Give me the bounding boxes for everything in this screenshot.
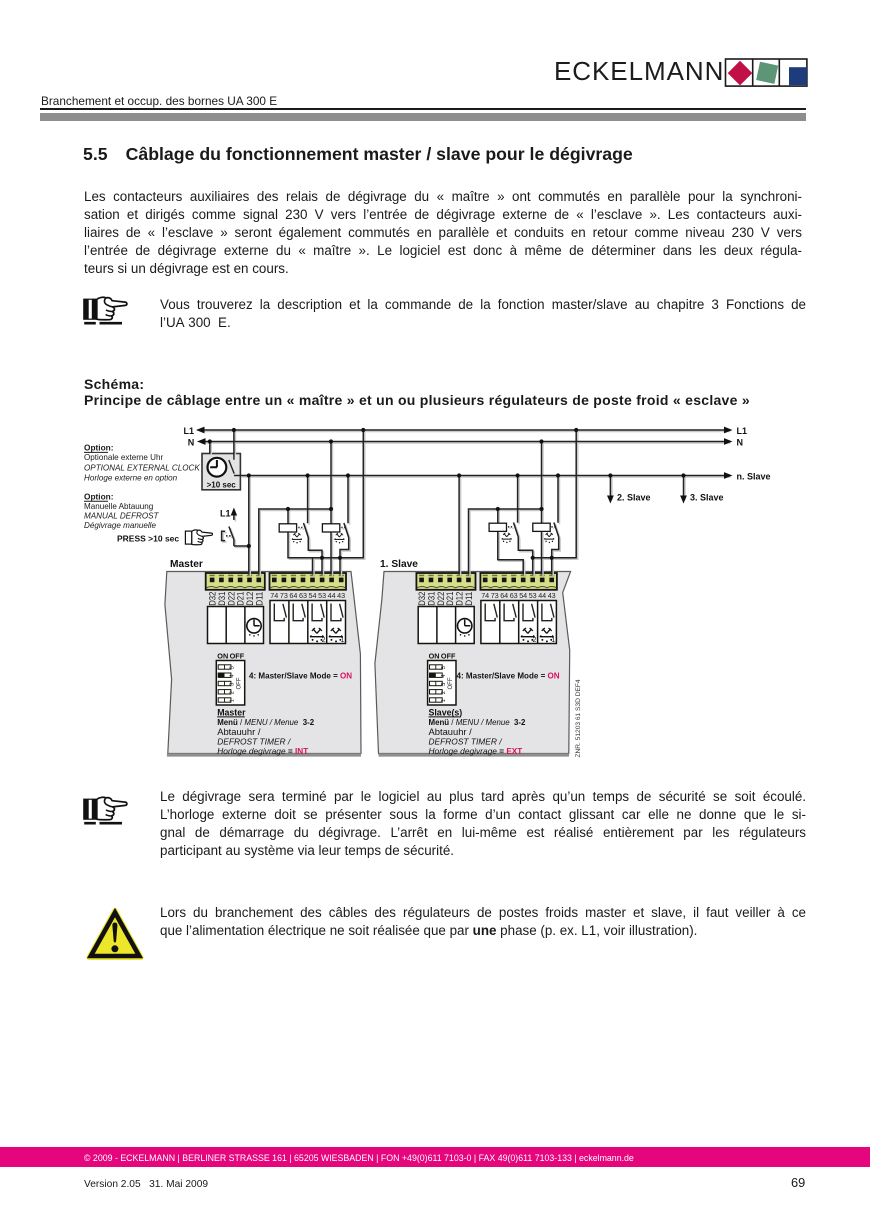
svg-text:ON: ON xyxy=(217,652,228,661)
svg-text:ON: ON xyxy=(429,652,440,661)
svg-text:1: 1 xyxy=(441,699,447,702)
svg-text:64: 64 xyxy=(500,591,508,600)
svg-text:2: 2 xyxy=(533,637,537,644)
svg-text:Option:: Option: xyxy=(84,491,114,501)
svg-text:OFF: OFF xyxy=(237,677,243,689)
svg-text:43: 43 xyxy=(548,591,556,600)
svg-text:2. Slave: 2. Slave xyxy=(617,492,651,502)
svg-text:Manuelle Abtauung: Manuelle Abtauung xyxy=(84,502,153,511)
svg-text:Abtauuhr /: Abtauuhr / xyxy=(217,726,261,737)
svg-text:3: 3 xyxy=(230,683,236,686)
svg-text:N: N xyxy=(188,437,195,447)
svg-text:53: 53 xyxy=(529,591,537,600)
svg-text:MANUAL DEFROST: MANUAL DEFROST xyxy=(84,511,160,520)
svg-text:D11: D11 xyxy=(464,592,474,606)
svg-text:L1: L1 xyxy=(220,509,231,519)
svg-text:54: 54 xyxy=(519,591,527,600)
svg-text:Optionale externe Uhr: Optionale externe Uhr xyxy=(84,453,163,462)
svg-text:OPTIONAL EXTERNAL CLOCK: OPTIONAL EXTERNAL CLOCK xyxy=(84,463,200,472)
svg-text:43: 43 xyxy=(337,591,345,600)
svg-text:Dégivrage manuelle: Dégivrage manuelle xyxy=(84,521,156,530)
svg-text:ZNR. 51203 61 S3D DEF4: ZNR. 51203 61 S3D DEF4 xyxy=(575,679,582,757)
svg-text:1. Slave: 1. Slave xyxy=(380,559,418,570)
svg-text:2: 2 xyxy=(230,691,236,694)
svg-text:n. Slave: n. Slave xyxy=(737,471,771,481)
svg-text:1: 1 xyxy=(341,637,345,644)
svg-text:44: 44 xyxy=(328,591,336,600)
svg-text:74: 74 xyxy=(481,591,489,600)
svg-text:Horloge externe en option: Horloge externe en option xyxy=(84,474,178,483)
svg-text:3: 3 xyxy=(441,683,447,686)
svg-text:53: 53 xyxy=(318,591,326,600)
svg-text:73: 73 xyxy=(491,591,499,600)
svg-text:OFF: OFF xyxy=(230,652,245,661)
svg-text:OFF: OFF xyxy=(441,652,456,661)
svg-text:>10 sec: >10 sec xyxy=(207,480,237,489)
svg-text:63: 63 xyxy=(299,591,307,600)
svg-text:L1: L1 xyxy=(184,426,195,436)
svg-text:N: N xyxy=(737,437,744,447)
svg-text:Horloge degivrage = EXT: Horloge degivrage = EXT xyxy=(429,746,523,756)
svg-text:Slave(s): Slave(s) xyxy=(429,708,463,718)
svg-text:Abtauuhr /: Abtauuhr / xyxy=(429,726,473,737)
svg-text:1: 1 xyxy=(230,699,236,702)
svg-text:5: 5 xyxy=(441,666,447,669)
svg-text:2: 2 xyxy=(322,637,326,644)
svg-text:DEFROST TIMER /: DEFROST TIMER / xyxy=(217,736,292,746)
svg-text:Master: Master xyxy=(170,559,203,570)
svg-text:Horloge degivrage = INT: Horloge degivrage = INT xyxy=(217,746,308,756)
svg-text:OFF: OFF xyxy=(448,677,454,689)
svg-text:1: 1 xyxy=(551,637,555,644)
svg-text:DEFROST TIMER /: DEFROST TIMER / xyxy=(429,736,504,746)
svg-text:4: Master/Slave Mode = ON: 4: Master/Slave Mode = ON xyxy=(457,671,560,680)
svg-text:64: 64 xyxy=(289,591,297,600)
svg-text:Option:: Option: xyxy=(84,443,114,453)
svg-text:3. Slave: 3. Slave xyxy=(690,492,724,502)
svg-text:63: 63 xyxy=(510,591,518,600)
svg-text:4: Master/Slave Mode = ON: 4: Master/Slave Mode = ON xyxy=(249,671,352,680)
svg-text:2: 2 xyxy=(441,691,447,694)
svg-text:44: 44 xyxy=(538,591,546,600)
svg-text:PRESS >10 sec: PRESS >10 sec xyxy=(117,534,179,544)
svg-text:5: 5 xyxy=(230,666,236,669)
svg-text:74: 74 xyxy=(270,591,278,600)
svg-text:D11: D11 xyxy=(254,592,264,606)
svg-text:73: 73 xyxy=(280,591,288,600)
svg-text:Master: Master xyxy=(217,708,246,718)
svg-text:L1: L1 xyxy=(737,426,748,436)
svg-text:54: 54 xyxy=(309,591,317,600)
